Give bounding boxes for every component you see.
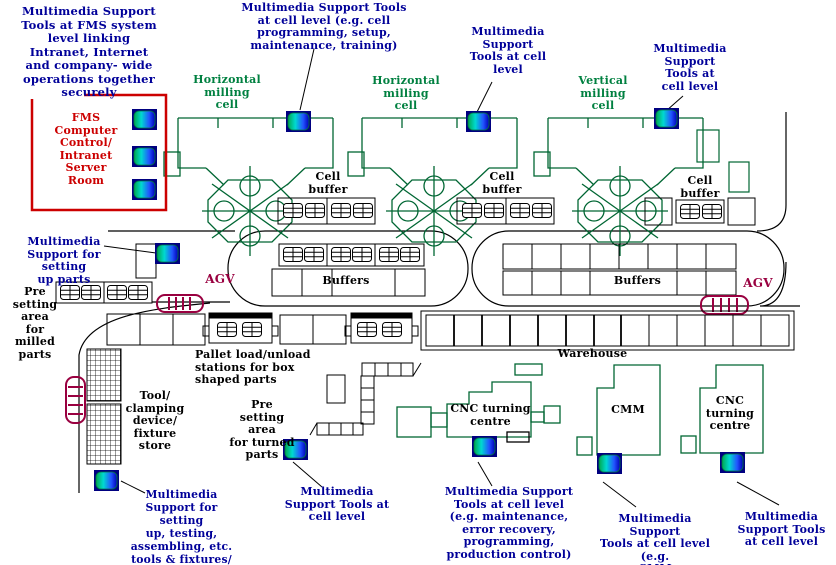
pallet-stations-label: Pallet load/unload stations for box shap… [195, 349, 325, 387]
machine-aux-box [697, 130, 719, 162]
cnc-cell-tools-annotation: Multimedia Support Tools at cell level (… [443, 486, 575, 561]
workstation-monitor-icon [654, 108, 679, 129]
system-level-annotation: Multimedia Support Tools at FMS system l… [8, 5, 170, 100]
workstation-monitor-icon [472, 436, 497, 457]
workstation-monitor-icon [720, 452, 745, 473]
tool-store-racks [87, 349, 121, 464]
pallet-load-station-2 [345, 313, 418, 343]
server-room-label: FMS Computer Control/ Intranet Server Ro… [50, 112, 122, 187]
setup-desk [136, 244, 156, 278]
horizontal-milling-cell-2-label: Horizontal milling cell [368, 75, 444, 113]
milling-machines [164, 118, 749, 256]
cmm-tools-annotation: Multimedia Support Tools at cell level (… [593, 513, 717, 565]
workstation-monitor-icon [155, 243, 180, 264]
cnc-turning-centre-2-label: CNC turning centre [698, 395, 762, 433]
workstation-monitor-icon [286, 111, 311, 132]
warehouse-label: Warehouse [545, 348, 640, 361]
server-room-monitor-icon [132, 146, 157, 167]
buffers-right-label: Buffers [600, 275, 675, 288]
multimedia-workstations [94, 108, 745, 491]
cell-buffer-3-label: Cell buffer [668, 175, 732, 200]
pre-setting-turned-label: Pre setting area for turned parts [228, 399, 296, 462]
vertical-milling-cell-label: Vertical milling cell [572, 75, 634, 113]
conveyor [310, 363, 421, 435]
warehouse-racks [421, 311, 794, 350]
cell-buffer-2 [457, 198, 554, 224]
cnc-turning-centre-1-label: CNC turning centre [448, 403, 533, 428]
cmm-label: CMM [598, 404, 658, 417]
agv-vehicle-left [157, 295, 203, 312]
workstation-monitor-icon [597, 453, 622, 474]
pre-setting-milled-label: Pre setting area for milled parts [4, 286, 66, 361]
cell-buffer-2-label: Cell buffer [467, 171, 537, 196]
cell-tools-annotation-3: Multimedia Support Tools at cell level [648, 43, 732, 93]
agv-label-left: AGV [202, 273, 238, 286]
server-room-monitor-icon [132, 109, 157, 130]
server-room-monitor-icon [132, 179, 157, 200]
tool-store-label: Tool/ clamping device/ fixture store [124, 390, 186, 453]
agv-label-right: AGV [740, 277, 776, 290]
buffers-left-label: Buffers [310, 275, 382, 288]
cnc2-tools-annotation: Multimedia Support Tools at cell level [734, 511, 829, 549]
setup-parts-annotation: Multimedia Support for setting up parts [4, 236, 124, 286]
station-row [107, 311, 794, 350]
cell-buffer-1-label: Cell buffer [293, 171, 363, 196]
horizontal-milling-cell-1-label: Horizontal milling cell [189, 74, 265, 112]
workstation-monitor-icon [466, 111, 491, 132]
road-right-vertical [757, 112, 786, 231]
workstation-monitor-icon [94, 470, 119, 491]
fms-layout-diagram: Multimedia Support Tools at FMS system l… [0, 0, 836, 565]
setup-tools-annotation: Multimedia Support for setting up, testi… [123, 488, 240, 565]
central-buffer-left [272, 244, 425, 296]
cell-tools-annotation-1: Multimedia Support Tools at cell level (… [238, 2, 410, 52]
cell-tools-annotation-2: Multimedia Support Tools at cell level [460, 26, 556, 76]
agv-vehicle-bottom [66, 377, 85, 423]
machine-aux-box [729, 162, 749, 192]
pallet-load-station-1 [203, 313, 278, 343]
turned-cell-tools-annotation: Multimedia Support Tools at cell level [284, 486, 390, 524]
